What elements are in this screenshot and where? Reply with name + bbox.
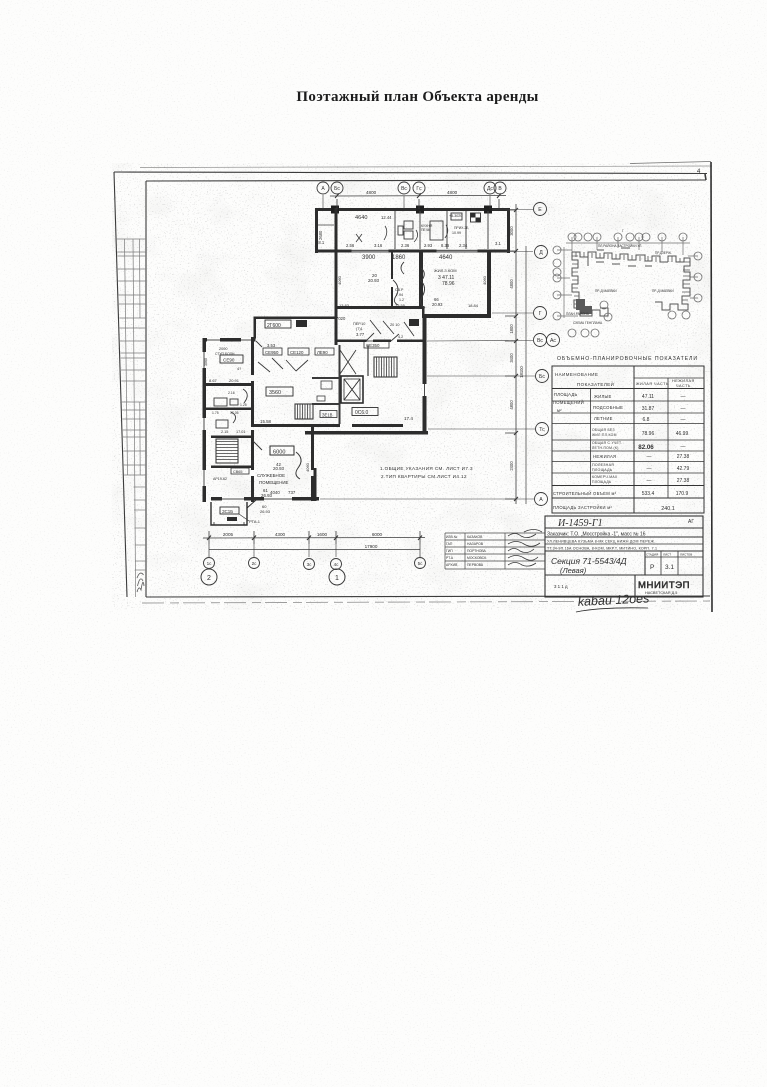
svg-text:4640: 4640 <box>355 215 367 221</box>
svg-text:НАЗАРОВ: НАЗАРОВ <box>467 542 484 546</box>
svg-text:СХЕМА ГЕНПЛАНА: СХЕМА ГЕНПЛАНА <box>573 321 603 325</box>
svg-text:ЧАСТЬ: ЧАСТЬ <box>676 384 691 388</box>
svg-text:4060: 4060 <box>482 275 487 285</box>
svg-text:(Левая): (Левая) <box>560 566 587 575</box>
svg-text:5с: 5с <box>418 561 424 566</box>
svg-text:Г: Г <box>539 311 542 317</box>
svg-text:3400: 3400 <box>509 353 514 363</box>
svg-text:78.96: 78.96 <box>442 281 455 287</box>
svg-text:6000: 6000 <box>273 450 285 456</box>
svg-text:4060: 4060 <box>305 462 310 472</box>
svg-text:737: 737 <box>288 490 296 495</box>
svg-text:Бс: Бс <box>539 374 545 380</box>
svg-text:ЛИСТ: ЛИСТ <box>663 553 671 557</box>
svg-text:ПЛ.РАЙОНА ЗАСТРОЙКИ УЛ.: ПЛ.РАЙОНА ЗАСТРОЙКИ УЛ. <box>598 244 642 248</box>
svg-text:3560: 3560 <box>269 390 281 396</box>
svg-text:82.06: 82.06 <box>638 444 654 451</box>
svg-text:Ас: Ас <box>550 338 556 344</box>
svg-text:НЕЖИЛАЯ: НЕЖИЛАЯ <box>672 379 695 383</box>
svg-text:42.79: 42.79 <box>677 466 690 472</box>
svg-text:1.25: 1.25 <box>240 403 247 407</box>
svg-text:20.93: 20.93 <box>368 278 380 283</box>
svg-text:4: 4 <box>697 169 701 175</box>
svg-text:17.4: 17.4 <box>404 416 413 421</box>
svg-text:ПОМЕЩЕНИЙ: ПОМЕЩЕНИЙ <box>553 400 584 405</box>
svg-text:46.99: 46.99 <box>676 431 689 437</box>
svg-text:78.96: 78.96 <box>642 431 655 437</box>
svg-text:Гс: Гс <box>416 186 422 192</box>
svg-text:АГ: АГ <box>688 519 694 525</box>
svg-text:17900: 17900 <box>365 544 378 549</box>
svg-text:7020: 7020 <box>336 316 346 321</box>
svg-text:НЕЖИЛАЯ: НЕЖИЛАЯ <box>593 454 616 459</box>
svg-text:СЕ90: СЕ90 <box>223 358 235 363</box>
svg-text:10.99: 10.99 <box>452 231 461 235</box>
svg-text:ПР.ДЗЕРЖ.: ПР.ДЗЕРЖ. <box>655 251 672 255</box>
svg-text:7.94: 7.94 <box>396 293 403 297</box>
svg-text:4с: 4с <box>334 562 340 567</box>
svg-text:м²: м² <box>557 408 562 413</box>
svg-text:—: — <box>681 417 686 423</box>
svg-text:ПЛОЩАДЬ: ПЛОЩАДЬ <box>592 468 613 472</box>
svg-text:ПР-Д МАЕВКИ: ПР-Д МАЕВКИ <box>595 289 617 293</box>
svg-text:20.91: 20.91 <box>229 378 240 383</box>
svg-text:ЖИЛЫЕ: ЖИЛЫЕ <box>594 394 612 399</box>
svg-text:СВ65: СВ65 <box>233 470 243 474</box>
svg-text:2680: 2680 <box>318 230 323 240</box>
svg-text:47.11: 47.11 <box>642 394 654 400</box>
svg-text:2.93: 2.93 <box>424 243 433 248</box>
svg-text:—: — <box>647 454 652 460</box>
svg-text:12.44: 12.44 <box>381 215 392 220</box>
svg-text:2Г600: 2Г600 <box>267 323 281 329</box>
svg-text:3900: 3900 <box>362 255 376 261</box>
svg-text:СТАДИЯ: СТАДИЯ <box>646 553 658 557</box>
svg-text:ПЕРВОВА: ПЕРВОВА <box>467 563 484 567</box>
svg-text:3.1: 3.1 <box>495 241 501 246</box>
svg-text:ПОРТНОВА: ПОРТНОВА <box>467 549 486 553</box>
svg-text:ЛЕТНИЕ: ЛЕТНИЕ <box>594 416 613 421</box>
svg-text:ЖИЛАЯ ЧАСТЬ: ЖИЛАЯ ЧАСТЬ <box>636 382 669 386</box>
svg-text:1800: 1800 <box>509 324 514 334</box>
svg-text:Е: Е <box>538 207 542 213</box>
svg-text:ПОДСОБНЫЕ: ПОДСОБНЫЕ <box>593 405 623 410</box>
svg-text:+5-3020: +5-3020 <box>449 214 462 218</box>
svg-text:2: 2 <box>207 575 211 582</box>
svg-text:КАЗАКОВ: КАЗАКОВ <box>467 535 483 539</box>
svg-text:НАИМЕНОВАНИЕ: НАИМЕНОВАНИЕ <box>555 372 598 377</box>
svg-text:ГИП: ГИП <box>446 549 453 553</box>
svg-text:20.93: 20.93 <box>273 466 285 471</box>
svg-text:ПЕЧЬ: ПЕЧЬ <box>421 228 431 232</box>
svg-text:3 1 1 д: 3 1 1 д <box>554 584 568 589</box>
svg-text:2005: 2005 <box>223 532 234 537</box>
svg-text:Р: Р <box>650 564 654 571</box>
svg-text:31.87: 31.87 <box>642 406 655 412</box>
svg-text:3.16: 3.16 <box>374 243 383 248</box>
svg-text:17.01: 17.01 <box>236 430 246 434</box>
svg-text:6000: 6000 <box>372 532 383 537</box>
svg-text:—: — <box>681 406 686 412</box>
svg-text:4800: 4800 <box>509 400 514 410</box>
svg-text:13.83: 13.83 <box>339 303 350 308</box>
svg-text:ЛИСТОВ: ЛИСТОВ <box>680 553 692 557</box>
svg-text:4060: 4060 <box>337 275 342 285</box>
svg-text:2.56: 2.56 <box>346 243 355 248</box>
svg-text:4300: 4300 <box>275 532 286 537</box>
svg-text:СЕ950: СЕ950 <box>265 350 279 355</box>
svg-text:3.53: 3.53 <box>267 343 276 348</box>
svg-text:26.93: 26.93 <box>260 509 271 514</box>
svg-text:Дс: Дс <box>487 186 493 192</box>
svg-text:—: — <box>681 394 686 400</box>
svg-text:4?: 4? <box>237 367 241 371</box>
svg-text:2.ТИП КВАРТИРЫ СМ.ЛИСТ И4.12: 2.ТИП КВАРТИРЫ СМ.ЛИСТ И4.12 <box>381 474 467 479</box>
svg-text:1.ОБЩИЕ УКАЗАНИЯ СМ. ЛИСТ И7.3: 1.ОБЩИЕ УКАЗАНИЯ СМ. ЛИСТ И7.3 <box>380 466 473 471</box>
svg-text:3.77: 3.77 <box>356 332 365 337</box>
svg-text:2.34: 2.34 <box>459 243 468 248</box>
svg-text:6.8: 6.8 <box>643 417 650 423</box>
svg-text:20 10: 20 10 <box>390 323 400 327</box>
svg-text:АР19-62: АР19-62 <box>213 477 227 481</box>
svg-text:17.05: 17.05 <box>230 411 239 415</box>
svg-text:ПОМЕЩЕНИЕ: ПОМЕЩЕНИЕ <box>259 480 289 485</box>
svg-text:ПРИХ.2Б: ПРИХ.2Б <box>454 226 469 230</box>
svg-text:8.67: 8.67 <box>209 378 218 383</box>
svg-text:А: А <box>539 497 543 503</box>
svg-text:3.1: 3.1 <box>665 564 674 571</box>
svg-text:15.58: 15.58 <box>260 419 272 424</box>
svg-text:ПЛОЩАДЬ: ПЛОЩАДЬ <box>592 480 612 484</box>
svg-text:ЗЕ1В: ЗЕ1В <box>322 413 333 418</box>
svg-text:27.38: 27.38 <box>677 478 690 484</box>
svg-text:СВ.Р: СВ.Р <box>395 288 404 292</box>
svg-text:20.93: 20.93 <box>432 302 443 307</box>
svg-text:СТРОИТЕЛЬНЫЙ ОБЪЕМ м³: СТРОИТЕЛЬНЫЙ ОБЪЕМ м³ <box>553 491 617 496</box>
svg-text:РТ.А: РТ.А <box>446 556 454 560</box>
svg-text:ОБЩАЯ С УЧЕТ.: ОБЩАЯ С УЧЕТ. <box>592 441 622 445</box>
svg-text:—: — <box>647 478 652 484</box>
svg-text:533.4: 533.4 <box>642 491 655 497</box>
svg-text:Вс: Вс <box>401 186 407 192</box>
svg-text:4800: 4800 <box>509 279 514 289</box>
svg-text:ПЕР.10: ПЕР.10 <box>353 322 365 326</box>
svg-text:ПЛАН.РАЙОНА: ПЛАН.РАЙОНА <box>566 312 590 316</box>
svg-text:Д: Д <box>539 250 543 256</box>
svg-text:1: 1 <box>335 575 339 582</box>
svg-text:—: — <box>647 466 652 472</box>
svg-text:Тс: Тс <box>539 427 545 433</box>
svg-text:27.38: 27.38 <box>677 454 690 460</box>
svg-text:4800: 4800 <box>366 190 377 195</box>
svg-text:ПЛОЩАДЬ: ПЛОЩАДЬ <box>554 392 578 397</box>
svg-text:4800: 4800 <box>447 190 458 195</box>
svg-text:Вс: Вс <box>537 338 543 344</box>
svg-text:СЕ120: СЕ120 <box>290 350 304 355</box>
svg-text:4.2: 4.2 <box>398 335 403 339</box>
svg-text:(7)1: (7)1 <box>356 327 363 331</box>
svg-text:1860: 1860 <box>392 255 406 261</box>
svg-text:ЖИЛ.З.КОМ: ЖИЛ.З.КОМ <box>434 268 457 273</box>
svg-text:Заказчик: Т.О. „Мосстройка -1": Заказчик: Т.О. „Мосстройка -1", масс № 1… <box>547 531 646 538</box>
svg-text:ЖИЛ.ПЛ.КОМ: ЖИЛ.ПЛ.КОМ <box>592 433 617 437</box>
svg-text:2000: 2000 <box>219 347 227 351</box>
svg-text:3000: 3000 <box>509 226 514 236</box>
svg-text:2с: 2с <box>252 561 258 566</box>
svg-text:УЛ.ЛЕНИВЦЕВА КУЗЬМА 8-МК СЕКЦ: УЛ.ЛЕНИВЦЕВА КУЗЬМА 8-МК СЕКЦ НИЖН ДОМ П… <box>547 540 655 544</box>
svg-text:kаbаи 12оes: kаbаи 12оes <box>577 591 649 609</box>
svg-text:1.75: 1.75 <box>212 411 219 415</box>
svg-text:3060: 3060 <box>204 358 208 366</box>
svg-text:ПОКАЗАТЕЛЕЙ: ПОКАЗАТЕЛЕЙ <box>577 382 614 387</box>
svg-text:ОБЩАЯ БЕЗ: ОБЩАЯ БЕЗ <box>592 428 615 432</box>
svg-text:АРХИВ: АРХИВ <box>446 563 458 567</box>
svg-text:4040: 4040 <box>270 490 280 495</box>
svg-text:ИЗВ.№: ИЗВ.№ <box>446 535 458 539</box>
svg-text:А: А <box>321 186 325 192</box>
svg-text:2.36: 2.36 <box>401 243 410 248</box>
svg-text:ЛЕТН.ПОМ.(К): ЛЕТН.ПОМ.(К) <box>592 446 619 450</box>
svg-text:МНИИТЭП: МНИИТЭП <box>638 580 690 591</box>
svg-text:2.16: 2.16 <box>228 391 235 395</box>
svg-text:ПЛОЩАДЬ ЗАСТРОЙКИ м²: ПЛОЩАДЬ ЗАСТРОЙКИ м² <box>553 505 612 510</box>
svg-text:ОБЪЕМНО-ПЛАНИРОВОЧНЫЕ ПОКАЗАТЕ: ОБЪЕМНО-ПЛАНИРОВОЧНЫЕ ПОКАЗАТЕЛИ <box>557 356 698 362</box>
svg-text:ЗС1Б: ЗС1Б <box>222 509 233 514</box>
svg-text:Секция 71-5543/4Д: Секция 71-5543/4Д <box>551 556 627 566</box>
svg-text:1с: 1с <box>207 561 213 566</box>
svg-text:2400: 2400 <box>509 461 514 471</box>
svg-text:Г: Г <box>622 229 624 233</box>
svg-text:КОМЕРЧ.МАХ: КОМЕРЧ.МАХ <box>592 475 618 479</box>
svg-text:2.15: 2.15 <box>221 430 228 434</box>
svg-text:В: В <box>498 186 502 192</box>
svg-text:ТТ.34-9П.16А ОСНОВА, 8-КОМ, МК: ТТ.34-9П.16А ОСНОВА, 8-КОМ, МКР.Т, МИТИН… <box>547 547 657 551</box>
svg-text:4640: 4640 <box>439 255 453 261</box>
svg-text:1600: 1600 <box>317 532 328 537</box>
svg-text:Бс: Бс <box>334 186 340 192</box>
svg-text:240.1: 240.1 <box>661 506 675 512</box>
svg-text:И-1459-Г1: И-1459-Г1 <box>557 518 603 529</box>
svg-text:ПР-Д МАЕВКИ: ПР-Д МАЕВКИ <box>652 289 674 293</box>
svg-text:СЕ350: СЕ350 <box>366 343 380 348</box>
svg-text:8.36: 8.36 <box>441 243 450 248</box>
svg-text:1.2: 1.2 <box>399 298 404 302</box>
svg-text:18.84: 18.84 <box>468 303 479 308</box>
svg-text:МОСКОВСК.: МОСКОВСК. <box>467 556 487 560</box>
svg-text:РТА-1: РТА-1 <box>249 519 261 524</box>
svg-text:0С6.0: 0С6.0 <box>355 410 369 416</box>
svg-text:3с: 3с <box>307 562 313 567</box>
svg-text:—: — <box>681 444 686 450</box>
svg-text:ГАП: ГАП <box>446 542 453 546</box>
svg-text:170.9: 170.9 <box>676 491 689 497</box>
svg-text:НАСВЕТСКАЯ Д.5: НАСВЕТСКАЯ Д.5 <box>645 591 677 595</box>
svg-text:СЛУЖЕБНОЕ: СЛУЖЕБНОЕ <box>257 473 285 478</box>
svg-text:ЛЕ90: ЛЕ90 <box>317 350 328 355</box>
svg-text:ПОЛЕЗНАЯ: ПОЛЕЗНАЯ <box>592 463 614 467</box>
